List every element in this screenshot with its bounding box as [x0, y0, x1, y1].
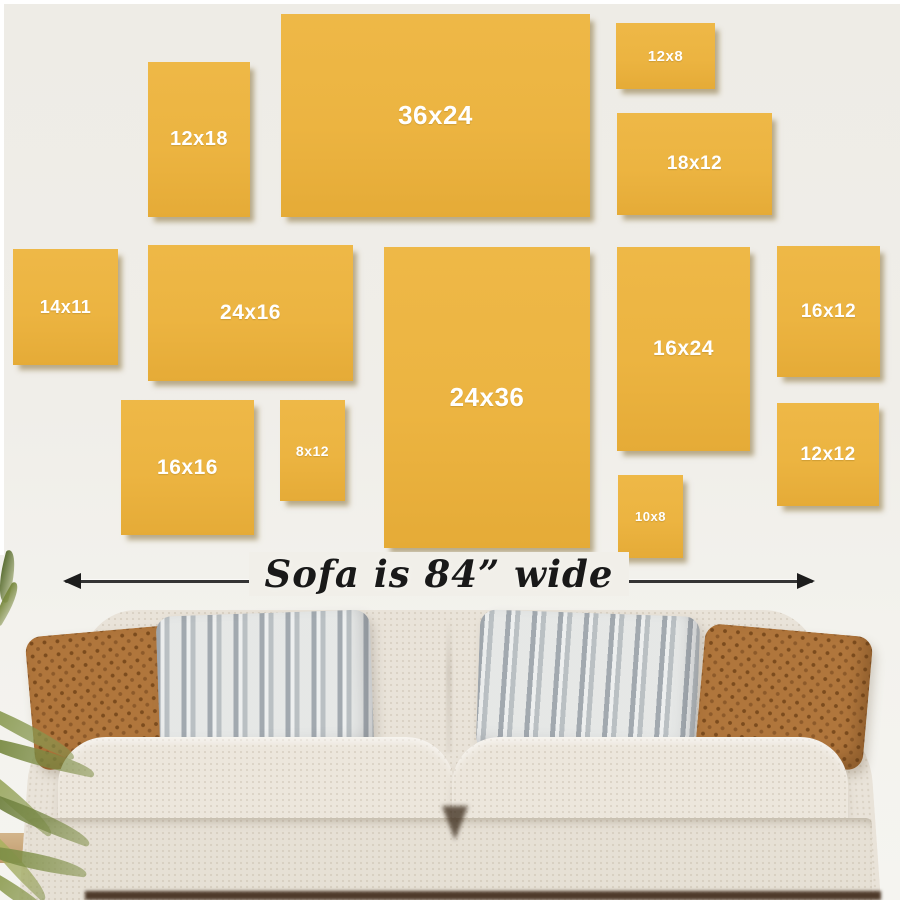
frame-size-label: 14x11 [40, 297, 92, 318]
floor-shadow [85, 891, 881, 900]
frame-size-label: 12x18 [170, 128, 228, 151]
frame-12x12: 12x12 [777, 403, 879, 506]
frame-16x12: 16x12 [777, 246, 880, 377]
frame-size-label: 12x12 [800, 444, 855, 466]
size-guide-scene: 12x1836x2412x818x1214x1124x1624x3616x241… [0, 0, 900, 900]
frame-size-label: 16x24 [653, 337, 714, 361]
left-white-border [0, 0, 4, 555]
frame-24x36: 24x36 [384, 247, 590, 548]
frame-size-label: 12x8 [648, 48, 683, 65]
sofa-width-caption: Sofa is 84” wide [249, 552, 630, 596]
frame-14x11: 14x11 [13, 249, 118, 365]
frame-8x12: 8x12 [280, 400, 345, 501]
frame-size-label: 10x8 [635, 509, 666, 524]
frame-16x24: 16x24 [617, 247, 750, 451]
frame-12x8: 12x8 [616, 23, 715, 89]
frame-18x12: 18x12 [617, 113, 772, 215]
top-white-border [0, 0, 900, 4]
frame-size-label: 16x12 [801, 301, 856, 323]
frame-size-label: 24x16 [220, 301, 281, 325]
caption-row: Sofa is 84” wide [65, 552, 813, 596]
frame-12x18: 12x18 [148, 62, 250, 217]
sofa-back-seam [446, 618, 452, 753]
frame-size-label: 8x12 [296, 443, 329, 459]
frame-10x8: 10x8 [618, 475, 683, 558]
sofa-seat-notch-shadow [442, 806, 468, 840]
frame-size-label: 24x36 [450, 382, 525, 413]
frame-size-label: 16x16 [157, 456, 218, 480]
frame-size-label: 18x12 [667, 153, 722, 175]
frame-24x16: 24x16 [148, 245, 353, 381]
frame-size-label: 36x24 [398, 100, 473, 131]
frame-36x24: 36x24 [281, 14, 590, 217]
frame-16x16: 16x16 [121, 400, 254, 535]
